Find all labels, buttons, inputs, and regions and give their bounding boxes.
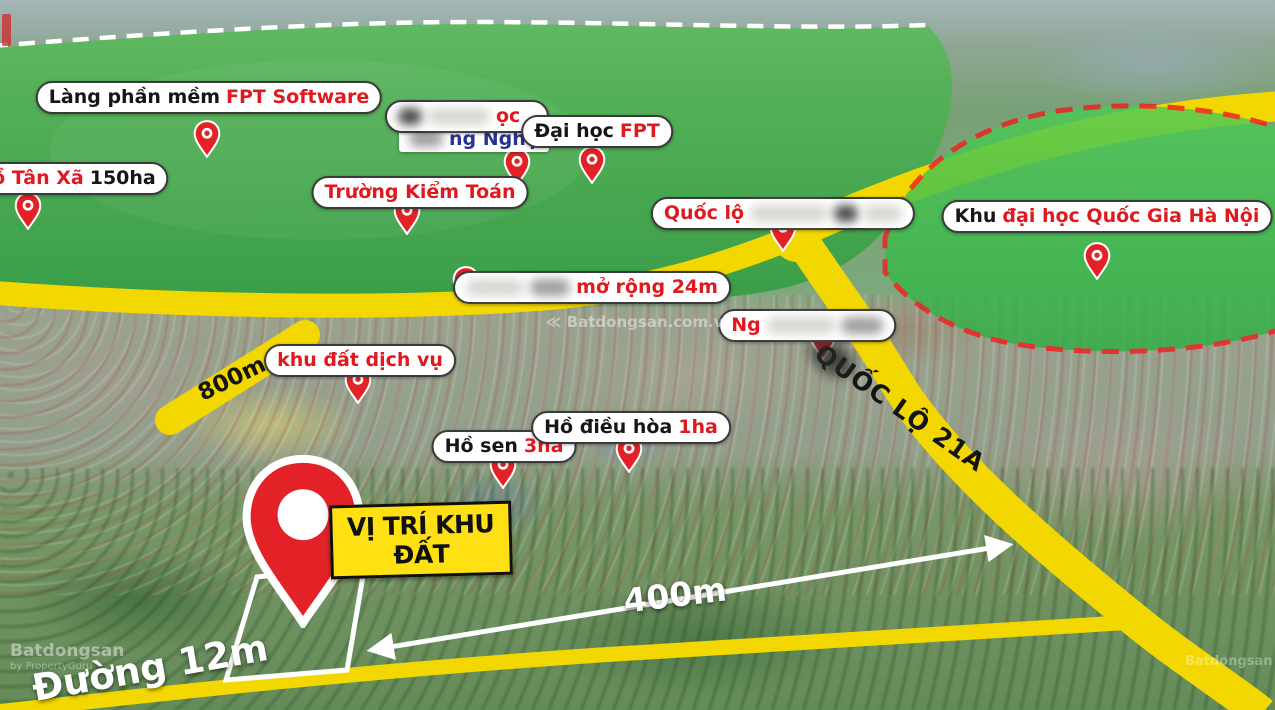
label-ho-dieu-hoa: Hồ điều hòa 1ha <box>531 411 731 444</box>
label-text: Trường Kiểm Toán <box>325 181 516 204</box>
watermark-text: Batdongsan.com.vn <box>567 313 735 331</box>
label-ng-redacted: Ng <box>718 309 896 342</box>
label-highlight: Hồ Tân Xã <box>0 167 84 190</box>
label-text: Hồ điều hòa <box>544 416 672 439</box>
annotated-aerial-map: Làng phần mềm FPT Software ọc ng Nghệ Đạ… <box>0 0 1275 710</box>
watermark-brand: Batdongsan <box>10 642 124 661</box>
label-text: Làng phần mềm <box>49 86 220 109</box>
label-truong-kiem-toan: Trường Kiểm Toán <box>312 176 529 209</box>
label-quoc-lo-redacted: Quốc lộ <box>651 197 915 230</box>
redaction-blur <box>834 205 858 222</box>
watermark-byline: by PropertyGuru <box>10 661 124 672</box>
label-mo-rong: mở rộng 24m <box>453 271 731 304</box>
label-highlight: đại học Quốc Gia Hà Nội <box>1002 205 1259 228</box>
corner-logo-mark <box>2 14 11 46</box>
label-fpt-software: Làng phần mềm FPT Software <box>36 81 382 114</box>
site-callout-text: VỊ TRÍ KHU ĐẤT <box>347 509 495 570</box>
label-text: Khu <box>955 205 997 228</box>
label-highlight: 1ha <box>678 416 718 439</box>
watermark-logo-icon: ≪ <box>546 313 567 331</box>
label-khu-dat-dich-vu: khu đất dịch vụ <box>264 344 456 377</box>
redaction-blur <box>767 317 835 334</box>
redaction-blur <box>398 108 422 125</box>
watermark-bottom-left: Batdongsan by PropertyGuru <box>10 642 124 672</box>
label-ho-tan-xa: Hồ Tân Xã 150ha <box>0 162 169 195</box>
redaction-blur <box>409 130 443 147</box>
redaction-blur <box>466 279 524 296</box>
label-text: 150ha <box>90 167 156 190</box>
label-dai-hoc-fpt: Đại học FPT <box>521 115 673 148</box>
label-fragment: Quốc lộ <box>664 202 744 225</box>
redaction-blur <box>841 317 883 334</box>
label-text: Hồ sen <box>445 435 518 458</box>
label-khu-dhqg: Khu đại học Quốc Gia Hà Nội <box>942 200 1273 233</box>
site-callout-box: VỊ TRÍ KHU ĐẤT <box>329 501 513 580</box>
watermark-bottom-right: Batdongsan <box>1185 655 1272 669</box>
label-highlight: FPT Software <box>226 86 369 109</box>
label-text: khu đất dịch vụ <box>277 349 443 372</box>
label-fragment: Ng <box>731 314 761 337</box>
redaction-blur <box>530 279 570 296</box>
watermark-center: ≪ Batdongsan.com.vn <box>546 314 735 331</box>
label-highlight: FPT <box>620 120 660 143</box>
label-text: Đại học <box>534 120 614 143</box>
redaction-blur <box>864 205 902 222</box>
redaction-blur <box>750 205 828 222</box>
label-fragment: ọc <box>496 105 520 128</box>
redaction-blur <box>428 108 490 125</box>
label-fragment: mở rộng 24m <box>576 276 718 299</box>
